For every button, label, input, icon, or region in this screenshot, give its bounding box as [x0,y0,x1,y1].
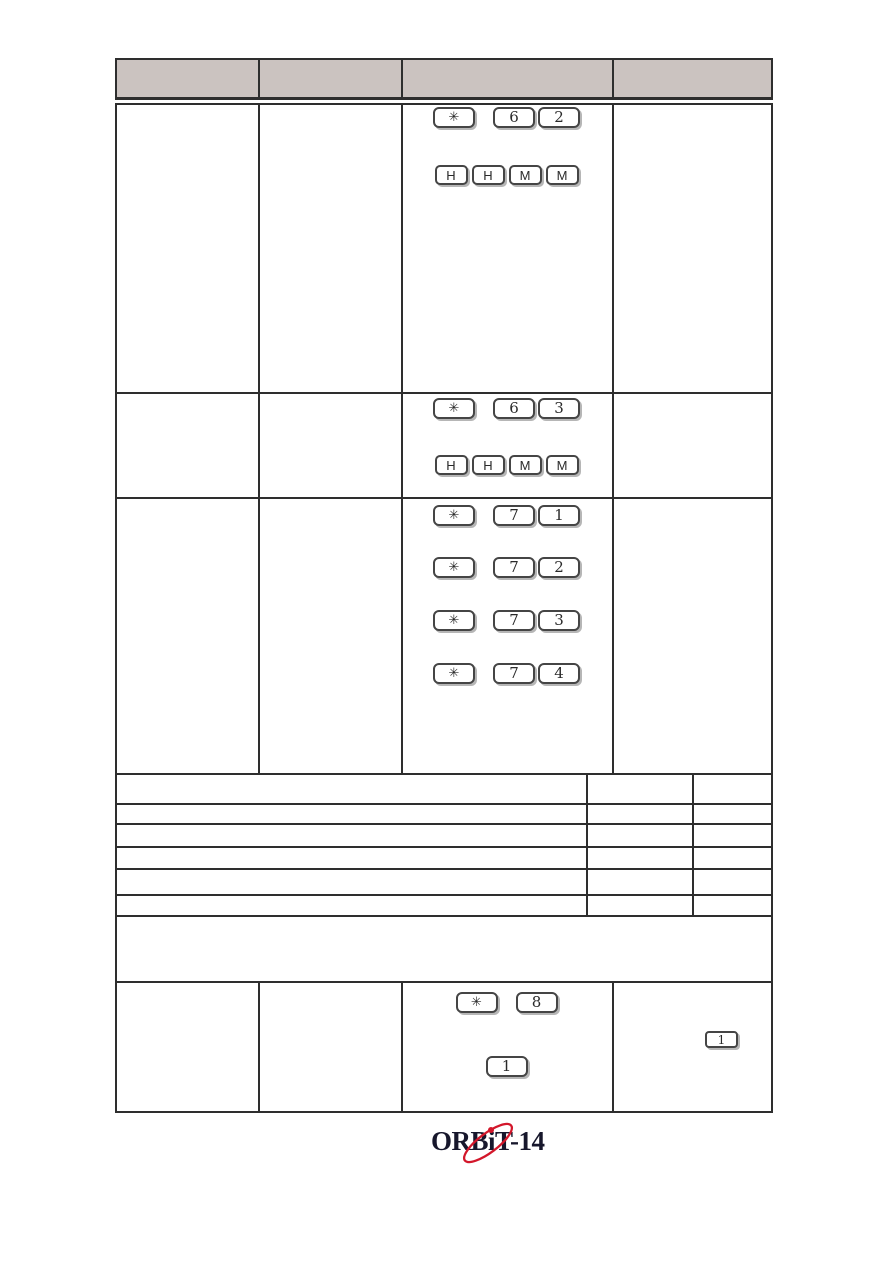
manual-page: ✳ 6 2 H H M M ✳ 6 3 H H M M ✳ [0,0,893,1263]
key-1-small: 1 [705,1031,738,1048]
key-2: 2 [538,557,580,578]
thin-rows-section [115,773,773,915]
star-key-icon: ✳ [433,398,475,419]
star-key-icon: ✳ [456,992,498,1013]
key-2: 2 [538,107,580,128]
key-4: 4 [538,663,580,684]
keypad-line-star71: ✳ 7 1 [401,504,612,526]
keypad-line-star8: ✳ 8 [401,991,612,1013]
key-h: H [472,455,505,475]
key-m: M [509,165,542,185]
keypad-line-star72: ✳ 7 2 [401,556,612,578]
star-key-icon: ✳ [433,610,475,631]
logo-text-orb: ORB [431,1126,488,1156]
star-key-icon: ✳ [433,663,475,684]
row-divider [117,823,771,825]
keypad-line-hhmm: H H M M [401,164,612,186]
keypad-line-star62: ✳ 6 2 [401,106,612,128]
row-divider [117,846,771,848]
key-h: H [435,165,468,185]
orbit-logo: ORBiT-14 [431,1126,545,1157]
key-3: 3 [538,610,580,631]
key-6: 6 [493,398,535,419]
key-3: 3 [538,398,580,419]
key-7: 7 [493,610,535,631]
row-divider [117,894,771,896]
key-6: 6 [493,107,535,128]
key-1: 1 [486,1056,528,1077]
key-h: H [472,165,505,185]
logo-text-t14: T-14 [495,1126,545,1156]
key-m: M [509,455,542,475]
keypad-line-star74: ✳ 7 4 [401,662,612,684]
key-7: 7 [493,663,535,684]
key-m: M [546,455,579,475]
column-divider [612,983,614,1111]
column-divider [612,60,614,97]
empty-note-row [115,915,773,981]
star-key-icon: ✳ [433,505,475,526]
column-divider [258,60,260,97]
key-7: 7 [493,505,535,526]
key-1: 1 [538,505,580,526]
key-h: H [435,455,468,475]
table-header-row [115,58,773,100]
column-divider [612,105,614,773]
keypad-line-hhmm: H H M M [401,454,612,476]
key-7: 7 [493,557,535,578]
logo-letter-i: i [488,1126,495,1157]
keypad-line-star73: ✳ 7 3 [401,609,612,631]
row-divider [117,392,771,394]
keypad-line-star63: ✳ 6 3 [401,397,612,419]
star-key-icon: ✳ [433,107,475,128]
key-m: M [546,165,579,185]
keypad-line-1: 1 [401,1055,612,1077]
column-divider [258,983,260,1111]
key-8: 8 [516,992,558,1013]
star-key-icon: ✳ [433,557,475,578]
column-divider [258,105,260,773]
column-divider [401,60,403,97]
row-divider [117,868,771,870]
row-divider [117,497,771,499]
row-divider [117,803,771,805]
